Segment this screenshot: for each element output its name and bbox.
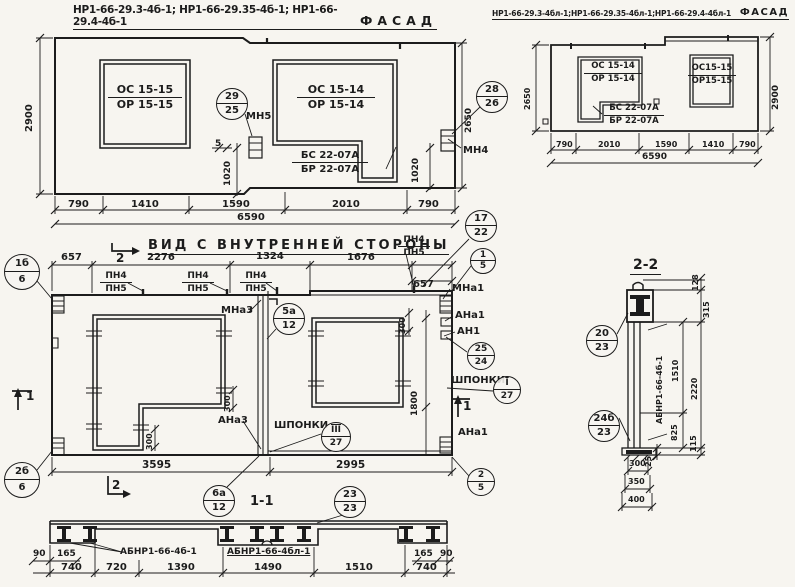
window2-left-facade-mark: ОС 15-14ОР 15-14	[297, 84, 375, 112]
dim-790-rf-1: 790	[556, 141, 573, 150]
block-mark-right-facade: БС 22-07АБР 22-07А	[604, 104, 664, 126]
dim-90-left: 90	[33, 550, 46, 560]
callout-I-27: I27	[493, 376, 521, 404]
label-mna1: МНа1	[452, 283, 484, 294]
dim-400-s22: 400	[628, 496, 645, 505]
dim-115-s22: 115	[690, 435, 699, 452]
dim-2010-rf: 2010	[598, 141, 620, 150]
dim-1020-left: 1020	[224, 161, 234, 186]
dim-657-mv-right: 657	[413, 279, 434, 290]
callout-2b-6: 2б6	[4, 462, 40, 498]
dim-2650-left-facade: 2650	[465, 108, 475, 133]
label-ana1-bottom: АНа1	[458, 427, 488, 438]
callout-6a-12: 6а12	[203, 485, 235, 517]
dim-825-s22: 825	[671, 424, 680, 441]
dim-1590-rf: 1590	[655, 141, 677, 150]
dim-2220-s22: 2220	[691, 378, 700, 400]
block-mark-left-facade: БС 22-07АБР 22-07А	[292, 150, 368, 175]
dim-165-left: 165	[57, 550, 76, 560]
dim-300-leg: 300	[146, 433, 155, 450]
dim-1490-s11: 1490	[254, 562, 282, 573]
callout-29-25: 2925	[216, 88, 248, 120]
dim-1020-right: 1020	[412, 158, 422, 183]
pn-mark-1: ПН4ПН5	[100, 271, 132, 294]
pn-mark-2: ПН4ПН5	[182, 271, 214, 294]
label-abnr-s11-b: АБНР1-66-4бл-1	[227, 548, 310, 558]
anchor-label-mn4: МН4	[463, 145, 488, 156]
dim-3595: 3595	[142, 460, 171, 472]
callout-5a-12: 5а12	[273, 303, 305, 335]
callout-2-5: 25	[467, 468, 495, 496]
dim-25-s22: 25	[645, 456, 654, 467]
callout-23-23: 2323	[334, 486, 366, 518]
dim-720-s11: 720	[106, 562, 127, 573]
window1-right-facade-mark: ОС 15-14ОР 15-14	[584, 62, 642, 84]
dim-1410-rf: 1410	[702, 141, 724, 150]
dim-1676-mv: 1676	[347, 252, 375, 263]
label-mna3: МНа3	[221, 305, 253, 316]
drawing-sheet: НР1-66-29.3-4б-1; НР1-66-29.35-4б-1; НР1…	[0, 0, 795, 587]
window2-right-facade-mark: ОС15-15ОР15-15	[688, 64, 736, 86]
callout-17-22: 1722	[465, 210, 497, 242]
dim-790-lf-1: 790	[68, 199, 89, 210]
label-abnr-s22: АБНР1-66-4б-1	[656, 356, 665, 424]
dim-1510-s22: 1510	[672, 360, 681, 382]
callout-1-5: 15	[470, 248, 496, 274]
dim-2995: 2995	[336, 460, 365, 472]
label-shponki-mid: ШПОНКИ	[274, 420, 328, 431]
pn-mark-4: ПН4ПН5	[398, 235, 430, 258]
dim-1324-mv: 1324	[256, 251, 284, 262]
label-abnr-s11-a: АБНР1-66-4б-1	[120, 548, 197, 558]
dim-2900-left-facade: 2900	[24, 104, 35, 132]
pn-mark-3: ПН4ПН5	[240, 271, 272, 294]
dim-5: 5	[215, 140, 221, 150]
dim-2900-right-facade: 2900	[772, 85, 782, 110]
callout-20-23: 2023	[586, 325, 618, 357]
dim-300-opening2: 300	[399, 317, 408, 334]
dim-300-opening1: 300	[224, 395, 233, 412]
dim-2650-right-facade: 2650	[524, 88, 533, 110]
cut-1-left: 1	[26, 390, 34, 403]
dim-2276-mv: 2276	[147, 252, 175, 263]
dim-350-s22: 350	[628, 478, 645, 487]
label-an1: АН1	[457, 326, 480, 337]
annotations-layer: МН5МН45102010202900265026502900790141015…	[0, 0, 795, 587]
callout-28-26: 2826	[476, 81, 508, 113]
dim-740-s11-1: 740	[61, 562, 82, 573]
dim-657-mv-left: 657	[61, 252, 82, 263]
dim-1410-lf: 1410	[131, 199, 159, 210]
callout-1b-6: 1б6	[4, 254, 40, 290]
window1-left-facade-mark: ОС 15-15ОР 15-15	[108, 84, 182, 112]
cut-2-top: 2	[116, 252, 124, 265]
dim-790-rf-2: 790	[739, 141, 756, 150]
cut-1-right: 1	[463, 400, 471, 413]
callout-III-27: III27	[321, 422, 351, 452]
dim-165-right: 165	[414, 550, 433, 560]
label-ana1-top: АНа1	[455, 310, 485, 321]
callout-25-24: 2524	[467, 342, 495, 370]
dim-128-s22: 128	[692, 274, 701, 291]
dim-740-s11-2: 740	[416, 562, 437, 573]
cut-2-bottom: 2	[112, 479, 120, 492]
dim-6590-lf: 6590	[237, 212, 265, 223]
dim-1390-s11: 1390	[167, 562, 195, 573]
label-ana3: АНа3	[218, 415, 248, 426]
dim-790-lf-2: 790	[418, 199, 439, 210]
dim-300-s22: 300	[629, 460, 646, 469]
dim-6590-rf: 6590	[642, 153, 667, 163]
dim-90-right: 90	[440, 550, 453, 560]
dim-1510-s11: 1510	[345, 562, 373, 573]
dim-1800: 1800	[411, 391, 421, 416]
anchor-label-mn5: МН5	[246, 111, 271, 122]
dim-2010-lf: 2010	[332, 199, 360, 210]
dim-315-s22: 315	[703, 301, 712, 318]
dim-1590-lf: 1590	[222, 199, 250, 210]
callout-24b-23: 24б23	[588, 410, 620, 442]
